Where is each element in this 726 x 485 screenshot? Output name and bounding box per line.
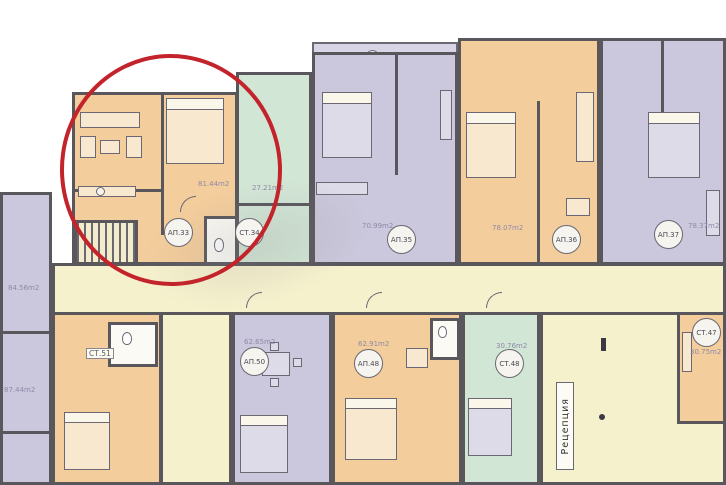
unit-badge-label: АП.36 bbox=[556, 236, 577, 244]
interior-wall bbox=[537, 101, 540, 268]
bed-pillow bbox=[466, 112, 516, 124]
unit-badge-label: АП.35 bbox=[391, 236, 412, 244]
area-label-st47: 30.75m2 bbox=[690, 348, 721, 356]
reception-sign: Рецепция bbox=[556, 382, 574, 470]
unit-badge-st47: СТ.47 bbox=[692, 318, 721, 347]
chair bbox=[293, 358, 302, 367]
floor-plan: АП.33 СТ.34 АП.35 АП.36 АП.37 АП.50 АП.4… bbox=[0, 0, 726, 485]
column-mark bbox=[599, 414, 605, 420]
unit-st51-bathroom bbox=[108, 322, 158, 367]
area-label-left-upper: 84.56m2 bbox=[8, 284, 39, 292]
area-label-left-lower: 87.44m2 bbox=[4, 386, 35, 394]
area-label-ap36: 78.07m2 bbox=[492, 224, 523, 232]
area-label-ap35: 70.99m2 bbox=[362, 222, 393, 230]
bed-pillow bbox=[240, 415, 288, 426]
bed-pillow bbox=[345, 398, 397, 409]
table bbox=[406, 348, 428, 368]
unit-badge-ap37: АП.37 bbox=[654, 220, 683, 249]
unit-badge-label: АП.50 bbox=[244, 358, 265, 366]
bed-pillow bbox=[64, 412, 110, 423]
armchair bbox=[566, 198, 590, 216]
column-mark bbox=[601, 338, 606, 351]
area-label-st48: 30.76m2 bbox=[496, 342, 527, 350]
unit-badge-label: АП.48 bbox=[358, 360, 379, 368]
unit-badge-ap48: АП.48 bbox=[354, 349, 383, 378]
unit-left-strip-room bbox=[0, 192, 52, 485]
unit-ap48-bathroom bbox=[430, 318, 460, 360]
interior-wall bbox=[3, 431, 49, 434]
reception-label: Рецепция bbox=[560, 398, 571, 454]
unit-badge-label: АП.37 bbox=[658, 231, 679, 239]
bed-pillow bbox=[468, 398, 512, 409]
area-label-ap37: 78.37m2 bbox=[688, 222, 719, 230]
toilet bbox=[438, 326, 447, 338]
unit-badge-label: СТ.48 bbox=[499, 360, 519, 368]
area-label-ap50: 62.65m2 bbox=[244, 338, 275, 346]
interior-wall bbox=[395, 55, 398, 175]
bed-pillow bbox=[322, 92, 372, 104]
corridor-branch bbox=[160, 312, 232, 485]
sofa bbox=[316, 182, 368, 195]
unit-badge-st51: СТ.51 bbox=[86, 348, 114, 359]
unit-ap35-room bbox=[312, 52, 458, 265]
bed-pillow bbox=[648, 112, 700, 124]
unit-badge-st48: СТ.48 bbox=[495, 349, 524, 378]
unit-badge-label: СТ.47 bbox=[696, 329, 716, 337]
area-label-ap48: 62.91m2 bbox=[358, 340, 389, 348]
unit-badge-ap36: АП.36 bbox=[552, 225, 581, 254]
interior-wall bbox=[3, 331, 49, 334]
chair bbox=[270, 378, 279, 387]
wardrobe bbox=[440, 90, 452, 140]
toilet bbox=[122, 332, 132, 345]
unit-badge-ap50: АП.50 bbox=[240, 347, 269, 376]
sofa bbox=[576, 92, 594, 162]
